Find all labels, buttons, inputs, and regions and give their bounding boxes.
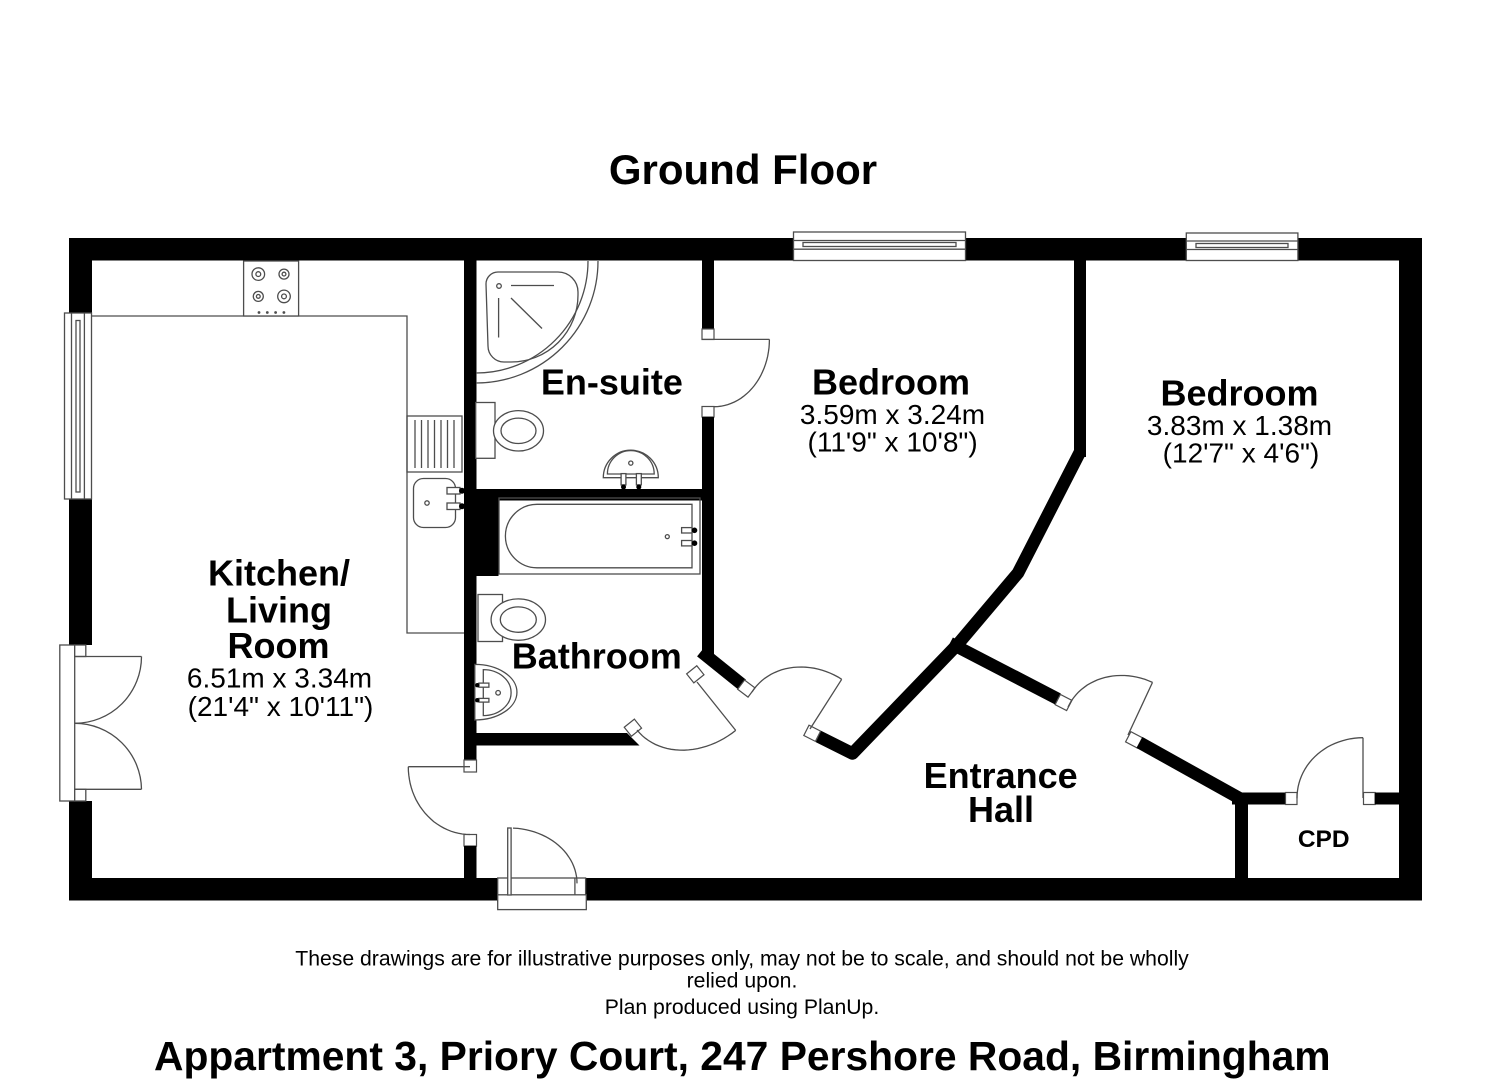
svg-text:3.83m x 1.38m: 3.83m x 1.38m (1147, 410, 1332, 441)
svg-text:CPD: CPD (1298, 826, 1350, 853)
svg-text:(12'7" x 4'6"): (12'7" x 4'6") (1163, 438, 1320, 469)
svg-text:Plan produced using PlanUp.: Plan produced using PlanUp. (605, 996, 879, 1019)
svg-text:Bedroom: Bedroom (1160, 373, 1318, 414)
svg-text:Bedroom: Bedroom (812, 361, 970, 402)
svg-text:Bathroom: Bathroom (512, 635, 682, 676)
svg-text:3.59m x 3.24m: 3.59m x 3.24m (800, 399, 985, 430)
svg-text:6.51m x 3.34m: 6.51m x 3.34m (187, 663, 372, 694)
svg-text:Hall: Hall (968, 789, 1034, 830)
svg-text:(11'9" x 10'8"): (11'9" x 10'8") (808, 426, 978, 457)
svg-text:Ground Floor: Ground Floor (609, 146, 877, 193)
svg-text:Kitchen/: Kitchen/ (208, 553, 350, 594)
svg-text:(21'4" x 10'11"): (21'4" x 10'11") (188, 691, 374, 722)
svg-text:relied upon.: relied upon. (687, 970, 798, 993)
svg-text:Room: Room (228, 625, 330, 666)
svg-text:Appartment 3, Priory Court, 24: Appartment 3, Priory Court, 247 Pershore… (154, 1033, 1331, 1079)
svg-text:These drawings are for illustr: These drawings are for illustrative purp… (295, 948, 1189, 971)
svg-text:En-suite: En-suite (541, 362, 683, 403)
